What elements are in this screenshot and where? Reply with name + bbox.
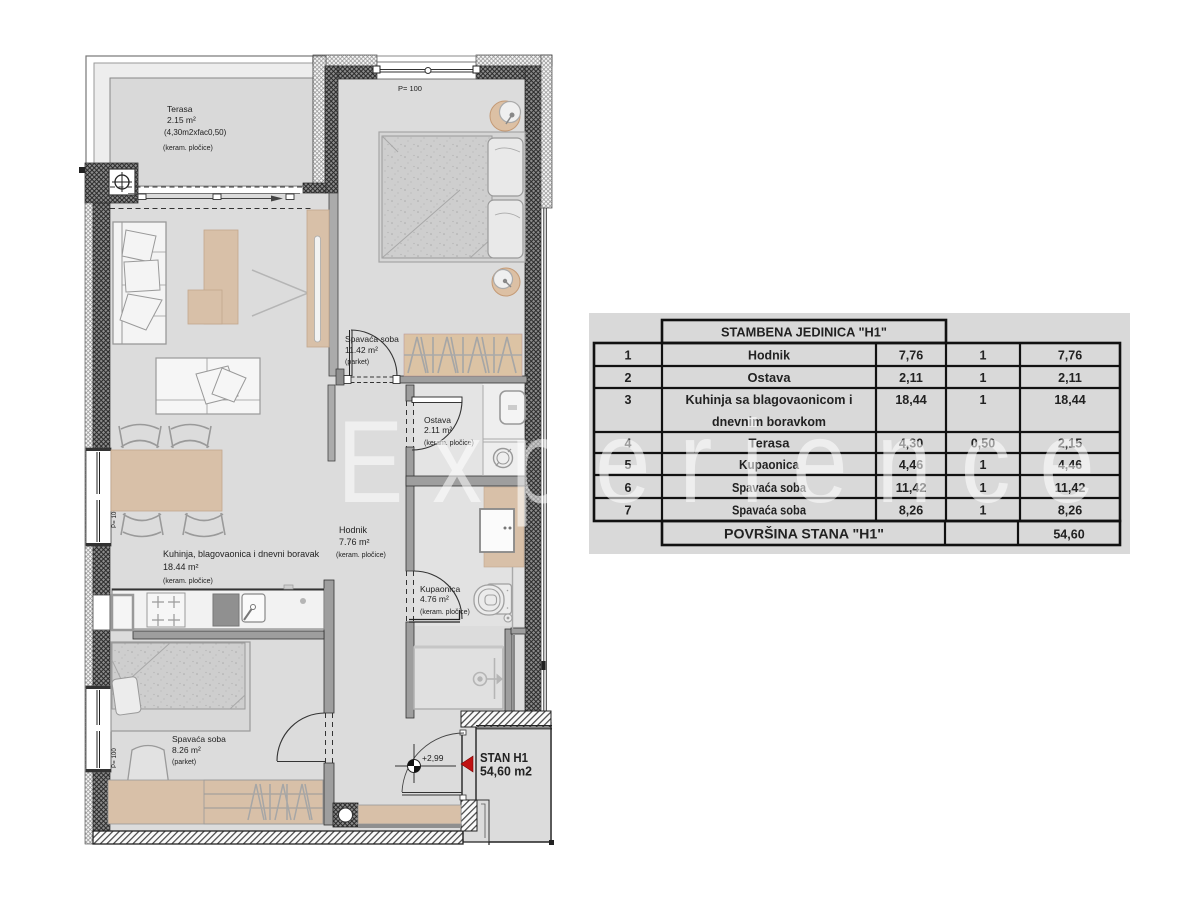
svg-text:Terasa: Terasa [167,104,193,114]
svg-text:1: 1 [980,349,987,363]
svg-text:(parket): (parket) [345,359,369,366]
svg-text:(4,30m2xfac0,50): (4,30m2xfac0,50) [164,128,227,137]
svg-text:54,60: 54,60 [1053,528,1084,542]
svg-text:7,76: 7,76 [1058,349,1082,363]
svg-text:(keram. pločice): (keram. pločice) [163,145,213,152]
svg-text:+2,99: +2,99 [422,753,444,763]
svg-text:(keram. pločice): (keram. pločice) [420,609,470,616]
svg-text:4.76 m²: 4.76 m² [420,594,449,604]
svg-text:STAN H1: STAN H1 [480,751,528,765]
svg-text:Spavaća soba: Spavaća soba [345,334,399,344]
svg-text:8.26 m²: 8.26 m² [172,745,201,755]
svg-text:2,11: 2,11 [1058,371,1082,385]
svg-text:2: 2 [625,371,632,385]
svg-text:1: 1 [625,349,632,363]
svg-text:P= 100: P= 100 [398,84,422,93]
svg-text:Hodnik: Hodnik [748,349,790,363]
svg-text:(keram. pločice): (keram. pločice) [163,578,213,585]
svg-text:Ostava: Ostava [748,371,792,385]
svg-text:18.44 m²: 18.44 m² [163,562,199,572]
svg-text:1: 1 [980,371,987,385]
svg-text:7,76: 7,76 [899,349,923,363]
svg-text:Kuhinja, blagovaonica i dnevni: Kuhinja, blagovaonica i dnevni boravak [163,549,320,559]
svg-text:2.15 m²: 2.15 m² [167,115,196,125]
svg-text:11.42 m²: 11.42 m² [345,345,378,355]
svg-text:7.76 m²: 7.76 m² [339,537,370,547]
svg-text:Spavaća soba: Spavaća soba [172,734,226,744]
svg-text:(keram. pločice): (keram. pločice) [336,552,386,559]
svg-text:Kupaonica: Kupaonica [420,584,460,594]
svg-text:STAMBENA JEDINICA "H1": STAMBENA JEDINICA "H1" [721,325,887,340]
svg-text:P= 100: P= 100 [111,748,118,768]
svg-text:POVRŠINA STANA "H1": POVRŠINA STANA "H1" [724,527,884,542]
svg-text:2,11: 2,11 [899,371,923,385]
svg-text:54,60 m2: 54,60 m2 [480,765,532,779]
svg-text:Experience: Experience [337,397,1124,527]
svg-text:(parket): (parket) [172,759,196,766]
